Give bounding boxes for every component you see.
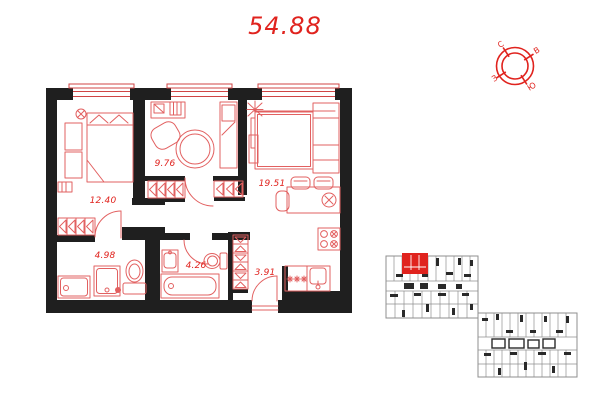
toilet xyxy=(123,260,146,294)
floor-drain xyxy=(115,287,121,293)
bedroom-door xyxy=(95,211,121,238)
toilet-2 xyxy=(204,253,227,269)
compass-letter-south: Ю xyxy=(526,80,538,92)
window-bedroom xyxy=(69,84,134,97)
tall-cabinet xyxy=(249,135,258,163)
living-kitchen-furniture xyxy=(247,101,340,291)
room-area-label-hallway: 3.91 xyxy=(255,268,276,278)
sofa xyxy=(313,103,339,173)
room-door xyxy=(185,178,213,206)
key-plan xyxy=(386,253,577,377)
chair xyxy=(148,119,183,152)
kitchen-sink xyxy=(307,266,330,291)
single-bed xyxy=(220,102,237,168)
kitchen-counter xyxy=(285,266,307,291)
room-area-label-living: 19.51 xyxy=(259,179,286,189)
bathroom-furniture xyxy=(58,260,146,298)
hallway-wardrobe xyxy=(233,235,248,289)
key-plan-block-b xyxy=(478,313,577,377)
corridor-wardrobe-left xyxy=(148,181,185,198)
compass-rose: С В З Ю xyxy=(490,39,541,93)
sink xyxy=(162,250,178,272)
round-table xyxy=(176,130,214,168)
room-area-label-room: 9.76 xyxy=(155,159,176,169)
dining-table xyxy=(276,177,340,213)
double-bed xyxy=(255,112,313,169)
stove xyxy=(318,228,340,250)
window-room xyxy=(167,84,232,97)
shower xyxy=(58,276,90,298)
entrance-door xyxy=(252,276,278,310)
key-plan-highlighted-unit[interactable] xyxy=(402,253,428,274)
key-plan-block-a xyxy=(386,253,478,318)
floor-plan: 12.40 9.76 19.51 4.98 4.26 3.91 xyxy=(46,84,352,313)
appliance-asterisks xyxy=(287,276,307,282)
room-area-label-bathroom: 4.98 xyxy=(95,251,116,261)
bathtub xyxy=(161,274,219,298)
apartment-plan-canvas: 54.88 С В З Ю xyxy=(0,0,600,400)
room-area-label-bathroom2: 4.26 xyxy=(186,261,207,271)
bedroom-furniture xyxy=(58,109,133,238)
room-area-label-bedroom: 12.40 xyxy=(90,196,117,206)
window-living xyxy=(258,84,339,97)
bedroom-wardrobe xyxy=(58,218,95,235)
total-area-title: 54.88 xyxy=(248,12,322,40)
